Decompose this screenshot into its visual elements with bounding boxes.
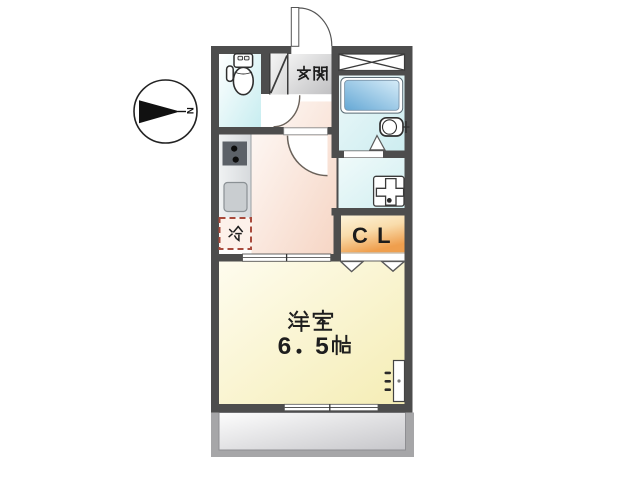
svg-text:N: N — [184, 107, 195, 114]
svg-text:L: L — [377, 223, 390, 248]
svg-text:6: 6 — [278, 333, 292, 360]
svg-text:C: C — [352, 223, 368, 248]
svg-text:5: 5 — [315, 333, 329, 360]
